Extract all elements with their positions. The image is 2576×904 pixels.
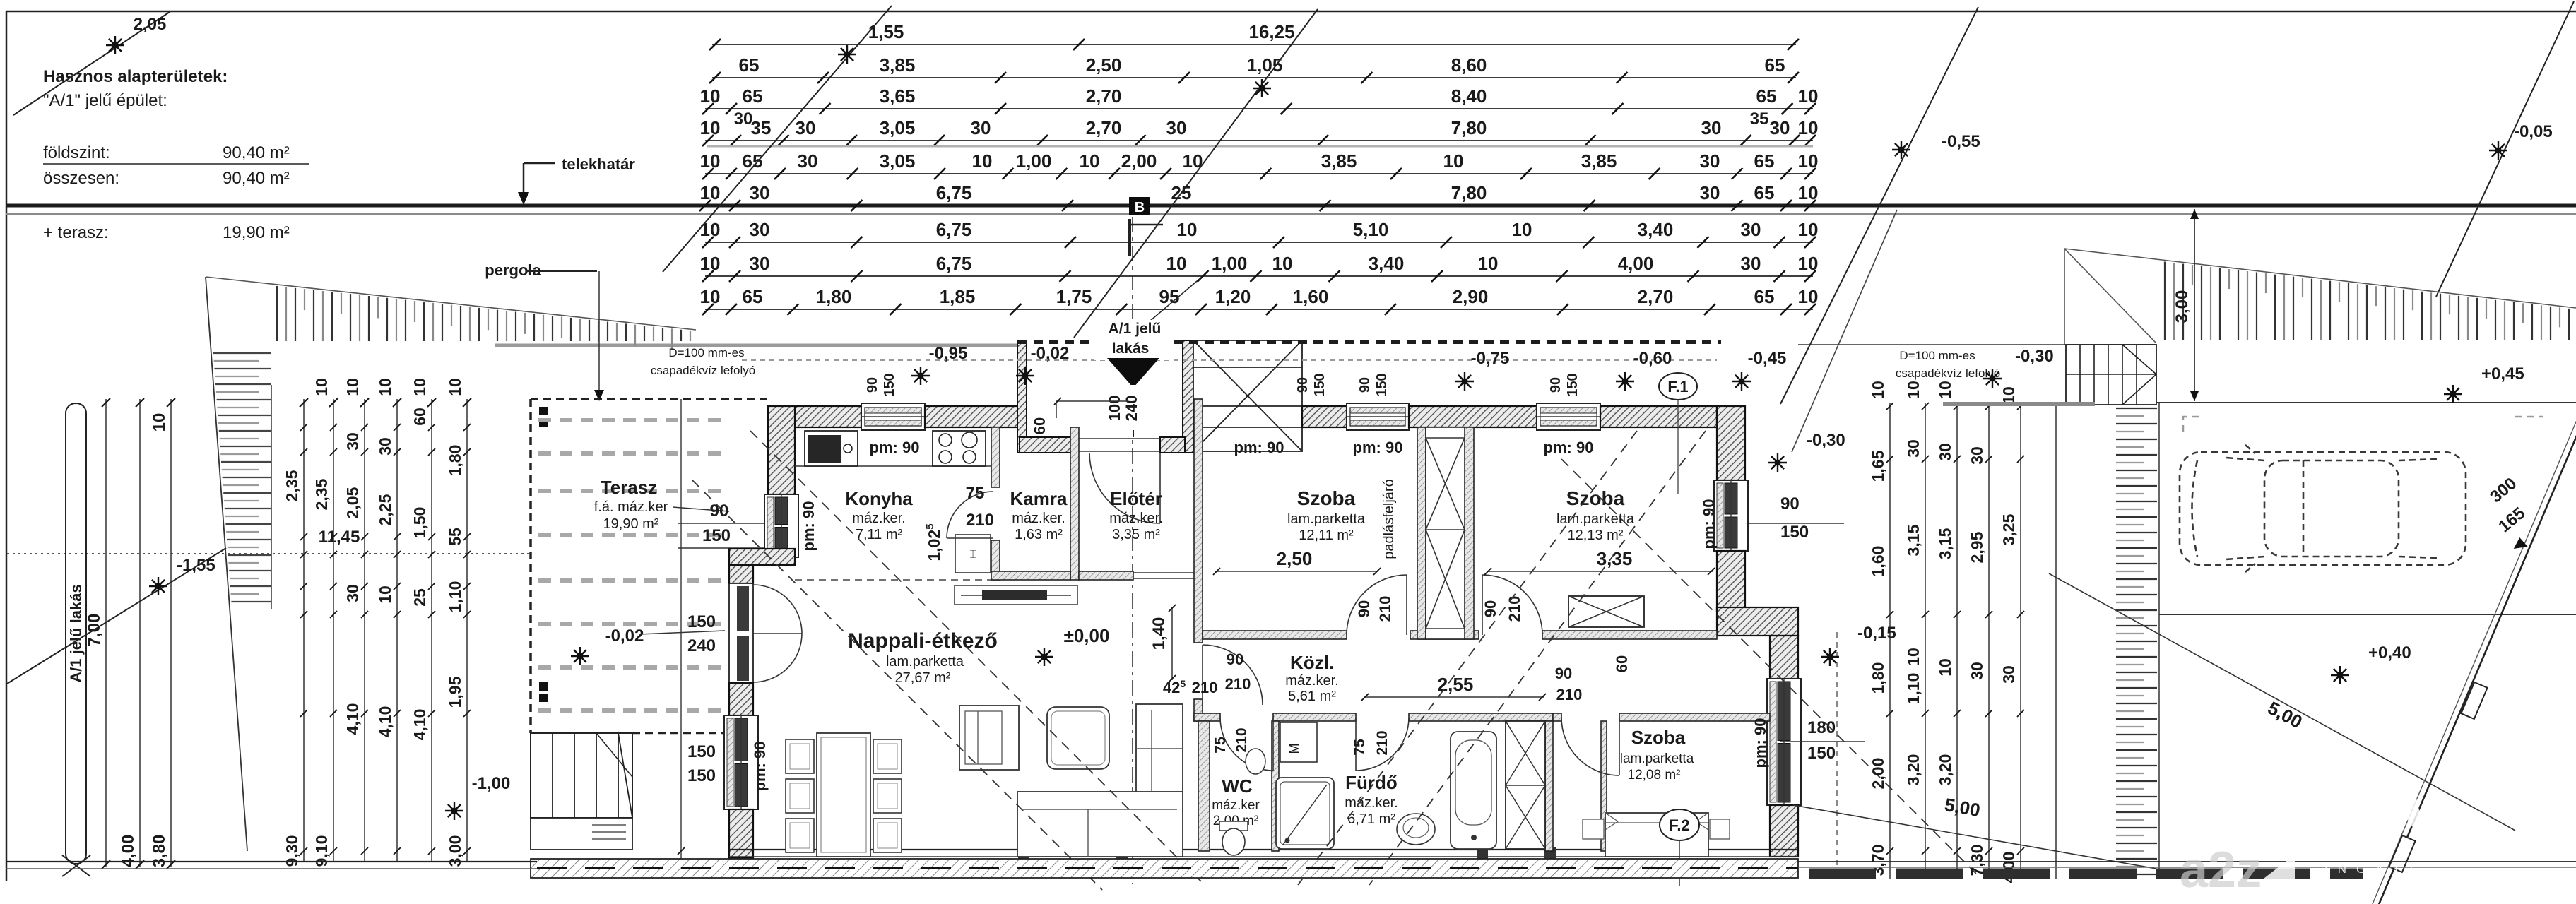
svg-text:6,75: 6,75 — [936, 253, 972, 274]
svg-text:2,70: 2,70 — [1086, 85, 1122, 107]
svg-text:-0,45: -0,45 — [1748, 349, 1787, 368]
svg-text:6,75: 6,75 — [936, 219, 972, 240]
svg-text:3,65: 3,65 — [880, 85, 916, 107]
svg-text:150: 150 — [687, 612, 716, 631]
svg-text:F.1: F.1 — [1667, 378, 1688, 395]
svg-text:padlásfeljáró: padlásfeljáró — [1381, 479, 1397, 559]
svg-text:3,15: 3,15 — [1904, 524, 1922, 556]
svg-text:90: 90 — [1357, 377, 1373, 393]
svg-text:90: 90 — [1295, 377, 1311, 393]
svg-text:3,80: 3,80 — [150, 835, 169, 868]
svg-text:210: 210 — [1556, 686, 1583, 703]
svg-text:180: 180 — [1807, 718, 1836, 737]
svg-text:1,20: 1,20 — [1215, 286, 1251, 307]
svg-text:1,85: 1,85 — [940, 286, 976, 307]
svg-text:f.á. máz.ker: f.á. máz.ker — [594, 499, 668, 515]
svg-text:90: 90 — [1355, 600, 1373, 617]
svg-text:4,00: 4,00 — [119, 835, 138, 868]
svg-text:3,35: 3,35 — [1597, 548, 1633, 569]
svg-text:5,61 m²: 5,61 m² — [1288, 689, 1336, 704]
svg-text:10: 10 — [1869, 381, 1887, 399]
svg-text:3,20: 3,20 — [1904, 754, 1922, 786]
svg-text:10: 10 — [343, 378, 362, 396]
svg-text:1,40: 1,40 — [1150, 617, 1169, 650]
svg-text:100: 100 — [1106, 395, 1123, 422]
svg-text:összesen:: összesen: — [43, 169, 119, 188]
svg-text:90,40 m²: 90,40 m² — [223, 143, 290, 162]
svg-text:90,40 m²: 90,40 m² — [223, 169, 290, 188]
svg-text:1,50: 1,50 — [410, 507, 429, 539]
svg-text:150: 150 — [1780, 523, 1809, 542]
svg-text:150: 150 — [687, 766, 716, 785]
svg-text:30: 30 — [1166, 117, 1187, 138]
svg-text:+ terasz:: + terasz: — [43, 223, 109, 242]
svg-text:B: B — [1135, 200, 1145, 215]
svg-text:pm: 90: pm: 90 — [1751, 718, 1769, 768]
svg-text:6,71 m²: 6,71 m² — [1347, 811, 1395, 827]
svg-text:1,95: 1,95 — [446, 676, 464, 708]
svg-text:210: 210 — [1374, 730, 1390, 755]
svg-text:30: 30 — [1968, 446, 1986, 465]
svg-text:Közl.: Közl. — [1290, 652, 1334, 673]
svg-text:3,35 m²: 3,35 m² — [1112, 527, 1160, 542]
svg-text:1,75: 1,75 — [1056, 286, 1092, 307]
svg-text:65: 65 — [743, 85, 763, 107]
svg-text:210: 210 — [966, 511, 994, 530]
svg-text:Terasz: Terasz — [601, 477, 657, 498]
svg-text:240: 240 — [1123, 395, 1140, 422]
svg-text:65: 65 — [739, 54, 760, 76]
svg-text:Előtér: Előtér — [1110, 488, 1162, 509]
svg-text:65: 65 — [743, 286, 763, 307]
svg-text:1,65: 1,65 — [1869, 450, 1887, 482]
svg-text:2,50: 2,50 — [1277, 548, 1313, 569]
svg-text:10: 10 — [1904, 381, 1922, 399]
svg-text:10: 10 — [1999, 386, 2018, 405]
svg-text:máz.ker.: máz.ker. — [1345, 795, 1398, 811]
svg-text:3,00: 3,00 — [2173, 290, 2192, 323]
svg-text:10: 10 — [700, 117, 721, 138]
svg-text:-0,30: -0,30 — [1807, 431, 1845, 450]
svg-text:30: 30 — [750, 182, 770, 203]
svg-text:10: 10 — [376, 378, 394, 396]
svg-text:10: 10 — [700, 182, 721, 203]
svg-text:lam.parketta: lam.parketta — [1620, 751, 1694, 766]
svg-text:10: 10 — [1798, 253, 1819, 274]
svg-text:2,25: 2,25 — [376, 494, 394, 525]
svg-text:10: 10 — [1166, 253, 1187, 274]
svg-text:30: 30 — [971, 117, 991, 138]
svg-text:150: 150 — [702, 526, 731, 545]
svg-text:210: 210 — [1192, 679, 1218, 696]
svg-text:4,00: 4,00 — [1618, 253, 1654, 274]
svg-text:65: 65 — [1754, 182, 1775, 203]
svg-text:30: 30 — [798, 150, 818, 172]
svg-text:16,25: 16,25 — [1248, 21, 1294, 42]
svg-text:10: 10 — [150, 413, 169, 432]
svg-text:150: 150 — [1374, 373, 1390, 396]
svg-text:Kamra: Kamra — [1010, 488, 1068, 509]
svg-text:10: 10 — [700, 150, 721, 172]
svg-text:4,10: 4,10 — [376, 706, 394, 738]
svg-text:3,15: 3,15 — [1936, 528, 1954, 559]
svg-text:1,60: 1,60 — [1869, 546, 1887, 578]
svg-text:pm: 90: pm: 90 — [751, 742, 769, 792]
svg-text:telekhatár: telekhatár — [562, 155, 635, 173]
svg-text:±0,00: ±0,00 — [1064, 625, 1110, 646]
svg-text:30: 30 — [734, 109, 753, 129]
svg-text:150: 150 — [1312, 373, 1328, 396]
svg-text:6,75: 6,75 — [936, 182, 972, 203]
svg-text:Szoba: Szoba — [1297, 487, 1356, 509]
svg-text:27,67 m²: 27,67 m² — [895, 670, 951, 686]
svg-text:A/1 jelű lakás: A/1 jelű lakás — [67, 584, 85, 682]
svg-text:90: 90 — [710, 501, 729, 521]
svg-text:8,60: 8,60 — [1451, 54, 1487, 76]
svg-text:10: 10 — [1798, 182, 1819, 203]
svg-text:8,40: 8,40 — [1451, 85, 1487, 107]
svg-text:lam.parketta: lam.parketta — [886, 654, 964, 670]
svg-text:-1,55: -1,55 — [177, 556, 215, 575]
svg-text:10: 10 — [312, 378, 331, 396]
svg-text:Nappali-étkező: Nappali-étkező — [848, 629, 998, 653]
svg-text:90: 90 — [1227, 650, 1243, 668]
svg-text:30: 30 — [1999, 665, 2018, 684]
svg-text:30: 30 — [343, 432, 362, 451]
svg-text:10: 10 — [410, 378, 429, 396]
svg-text:10: 10 — [1798, 219, 1819, 240]
svg-text:10: 10 — [1936, 381, 1954, 399]
svg-text:Szoba: Szoba — [1566, 487, 1625, 509]
svg-text:1,10: 1,10 — [1904, 673, 1922, 705]
svg-text:3,25: 3,25 — [1999, 513, 2018, 545]
svg-text:30: 30 — [1741, 219, 1761, 240]
svg-text:2,95: 2,95 — [1968, 531, 1986, 563]
svg-text:2,70: 2,70 — [1638, 286, 1674, 307]
svg-text:4,10: 4,10 — [410, 709, 429, 741]
svg-text:-0,75: -0,75 — [1471, 349, 1510, 368]
svg-text:1,80: 1,80 — [446, 445, 464, 477]
svg-text:"A/1" jelű épület:: "A/1" jelű épület: — [43, 91, 167, 110]
svg-text:90: 90 — [1780, 494, 1800, 513]
svg-text:60: 60 — [410, 408, 429, 426]
svg-text:3,85: 3,85 — [880, 54, 916, 76]
svg-text:F.2: F.2 — [1669, 816, 1689, 834]
svg-text:10: 10 — [1177, 219, 1198, 240]
svg-text:65: 65 — [1765, 54, 1785, 76]
svg-text:30: 30 — [1700, 182, 1720, 203]
svg-text:Konyha: Konyha — [845, 488, 913, 509]
svg-text:1,10: 1,10 — [446, 581, 464, 613]
svg-text:3,05: 3,05 — [880, 117, 916, 138]
svg-text:60: 60 — [1031, 417, 1048, 434]
svg-text:máz.ker: máz.ker — [1212, 798, 1260, 813]
svg-text:19,90 m²: 19,90 m² — [223, 223, 290, 242]
svg-text:10: 10 — [1798, 117, 1819, 138]
svg-text:90: 90 — [1548, 377, 1564, 393]
svg-text:210: 210 — [1225, 675, 1251, 693]
svg-text:máz.ker.: máz.ker. — [852, 511, 906, 526]
svg-text:lakás: lakás — [1112, 340, 1150, 357]
svg-text:2,70: 2,70 — [1086, 117, 1122, 138]
svg-text:2,05: 2,05 — [343, 487, 362, 518]
svg-text:10: 10 — [1904, 648, 1922, 666]
svg-text:10: 10 — [700, 253, 721, 274]
svg-text:240: 240 — [687, 636, 716, 655]
svg-text:11,45: 11,45 — [319, 528, 360, 547]
svg-text:210: 210 — [1376, 596, 1394, 622]
svg-text:WC: WC — [1222, 775, 1253, 797]
svg-text:pm: 90: pm: 90 — [1544, 439, 1594, 456]
svg-text:3,05: 3,05 — [880, 150, 916, 172]
svg-text:30: 30 — [1701, 117, 1722, 138]
svg-text:máz.ker.: máz.ker. — [1012, 511, 1065, 526]
svg-text:90: 90 — [865, 377, 880, 393]
svg-text:10: 10 — [446, 378, 464, 396]
svg-text:90: 90 — [1555, 665, 1572, 682]
svg-text:A/1 jelű: A/1 jelű — [1109, 321, 1162, 337]
svg-text:1,00: 1,00 — [1212, 253, 1248, 274]
svg-text:pm: 90: pm: 90 — [1234, 439, 1284, 456]
svg-text:30: 30 — [750, 219, 770, 240]
svg-text:lam.parketta: lam.parketta — [1287, 511, 1366, 527]
svg-text:10: 10 — [1798, 286, 1819, 307]
svg-text:1,80: 1,80 — [1869, 662, 1887, 694]
svg-text:-0,15: -0,15 — [1857, 624, 1896, 643]
svg-text:+0,40: +0,40 — [2368, 643, 2411, 662]
svg-text:65: 65 — [1754, 286, 1775, 307]
svg-text:75: 75 — [966, 484, 985, 503]
svg-text:65: 65 — [1756, 85, 1777, 107]
svg-text:3,40: 3,40 — [1369, 253, 1405, 274]
svg-text:10: 10 — [1080, 150, 1100, 172]
svg-text:Fürdő: Fürdő — [1345, 772, 1398, 793]
svg-text:1,00: 1,00 — [1016, 150, 1052, 172]
svg-text:10: 10 — [1798, 150, 1819, 172]
svg-text:150: 150 — [1565, 373, 1581, 396]
svg-text:-0,55: -0,55 — [1942, 132, 1980, 151]
svg-text:90: 90 — [1482, 600, 1499, 617]
svg-text:-0,95: -0,95 — [929, 344, 968, 363]
svg-text:földszint:: földszint: — [43, 143, 110, 162]
svg-text:30: 30 — [796, 117, 816, 138]
svg-text:csapadékvíz lefolyó: csapadékvíz lefolyó — [651, 364, 755, 377]
svg-text:10: 10 — [1936, 658, 1954, 677]
svg-text:55: 55 — [446, 528, 464, 546]
svg-text:INGATL: INGATL — [2324, 862, 2426, 876]
svg-text:12,11 m²: 12,11 m² — [1299, 528, 1354, 543]
svg-text:1,60: 1,60 — [1293, 286, 1329, 307]
svg-text:30: 30 — [1936, 443, 1954, 461]
svg-text:10: 10 — [376, 585, 394, 604]
svg-text:7,11 m²: 7,11 m² — [856, 527, 903, 542]
svg-text:10: 10 — [1478, 253, 1499, 274]
svg-text:5,10: 5,10 — [1353, 219, 1389, 240]
svg-text:pm: 90: pm: 90 — [870, 439, 920, 456]
svg-text:12,08 m²: 12,08 m² — [1628, 768, 1681, 783]
svg-text:2,00: 2,00 — [1869, 758, 1887, 790]
svg-text:3,20: 3,20 — [1936, 754, 1954, 786]
svg-text:-0,30: -0,30 — [2015, 347, 2054, 366]
svg-text:19,90 m²: 19,90 m² — [603, 516, 659, 532]
svg-text:2,50: 2,50 — [1086, 54, 1122, 76]
svg-text:10: 10 — [700, 85, 721, 107]
svg-text:a2z: a2z — [2180, 842, 2262, 898]
svg-text:30: 30 — [376, 437, 394, 456]
svg-text:30: 30 — [1904, 439, 1922, 458]
svg-text:1,05: 1,05 — [1247, 54, 1283, 76]
svg-text:pergola: pergola — [485, 261, 541, 279]
svg-text:30: 30 — [343, 584, 362, 602]
svg-text:máz.ker.: máz.ker. — [1285, 673, 1339, 689]
svg-text:pm: 90: pm: 90 — [1700, 499, 1718, 549]
svg-text:7,80: 7,80 — [1451, 117, 1487, 138]
svg-text:210: 210 — [1506, 596, 1523, 622]
svg-text:-0,02: -0,02 — [1031, 344, 1070, 363]
svg-text:150: 150 — [687, 742, 716, 761]
svg-text:30: 30 — [1700, 150, 1720, 172]
svg-text:10: 10 — [1512, 219, 1532, 240]
svg-text:4,10: 4,10 — [343, 703, 362, 735]
svg-text:máz.ker.: máz.ker. — [1109, 511, 1163, 526]
svg-text:⌶: ⌶ — [969, 549, 976, 561]
svg-text:2,35: 2,35 — [283, 470, 301, 501]
svg-text:D=100 mm-es: D=100 mm-es — [1899, 349, 1975, 362]
svg-text:2,05: 2,05 — [134, 15, 167, 34]
svg-text:-1,00: -1,00 — [472, 774, 511, 793]
svg-text:M: M — [1287, 744, 1301, 754]
svg-text:10: 10 — [1798, 85, 1819, 107]
svg-text:+0,45: +0,45 — [2481, 364, 2524, 383]
svg-text:pm: 90: pm: 90 — [1353, 439, 1403, 456]
svg-text:3,85: 3,85 — [1321, 150, 1357, 172]
svg-text:2,90: 2,90 — [1453, 286, 1489, 307]
svg-text:65: 65 — [1754, 150, 1775, 172]
svg-text:10: 10 — [700, 219, 721, 240]
svg-text:75: 75 — [1352, 739, 1368, 756]
svg-text:-0,60: -0,60 — [1633, 349, 1672, 368]
svg-text:7,80: 7,80 — [1451, 182, 1487, 203]
svg-text:2,35: 2,35 — [312, 478, 331, 510]
svg-text:-0,02: -0,02 — [605, 626, 644, 646]
svg-text:3,85: 3,85 — [1581, 150, 1617, 172]
svg-text:30: 30 — [1741, 253, 1761, 274]
svg-text:150: 150 — [882, 373, 897, 396]
svg-text:10: 10 — [1443, 150, 1464, 172]
svg-text:25: 25 — [410, 588, 429, 607]
svg-text:2,00: 2,00 — [1121, 150, 1157, 172]
svg-text:1,63 m²: 1,63 m² — [1015, 527, 1063, 542]
svg-text:30: 30 — [750, 253, 770, 274]
svg-text:35: 35 — [751, 117, 772, 138]
svg-text:3,40: 3,40 — [1638, 219, 1674, 240]
svg-text:10: 10 — [1272, 253, 1293, 274]
svg-text:10: 10 — [700, 286, 721, 307]
svg-text:-0,05: -0,05 — [2514, 122, 2553, 141]
svg-text:10: 10 — [972, 150, 993, 172]
svg-text:60: 60 — [1613, 655, 1631, 672]
svg-text:30: 30 — [1968, 662, 1986, 680]
svg-text:Szoba: Szoba — [1631, 727, 1686, 748]
svg-text:35: 35 — [1750, 109, 1769, 129]
svg-text:1,55: 1,55 — [868, 21, 904, 42]
svg-text:12,13 m²: 12,13 m² — [1568, 528, 1624, 543]
svg-text:D=100 mm-es: D=100 mm-es — [668, 346, 744, 359]
svg-text:30: 30 — [1770, 117, 1790, 138]
svg-text:1,80: 1,80 — [816, 286, 852, 307]
svg-text:pm: 90: pm: 90 — [800, 501, 817, 552]
svg-text:lam.parketta: lam.parketta — [1556, 511, 1635, 527]
svg-text:150: 150 — [1807, 744, 1836, 763]
svg-text:210: 210 — [1234, 727, 1250, 752]
svg-text:75: 75 — [1212, 737, 1229, 754]
